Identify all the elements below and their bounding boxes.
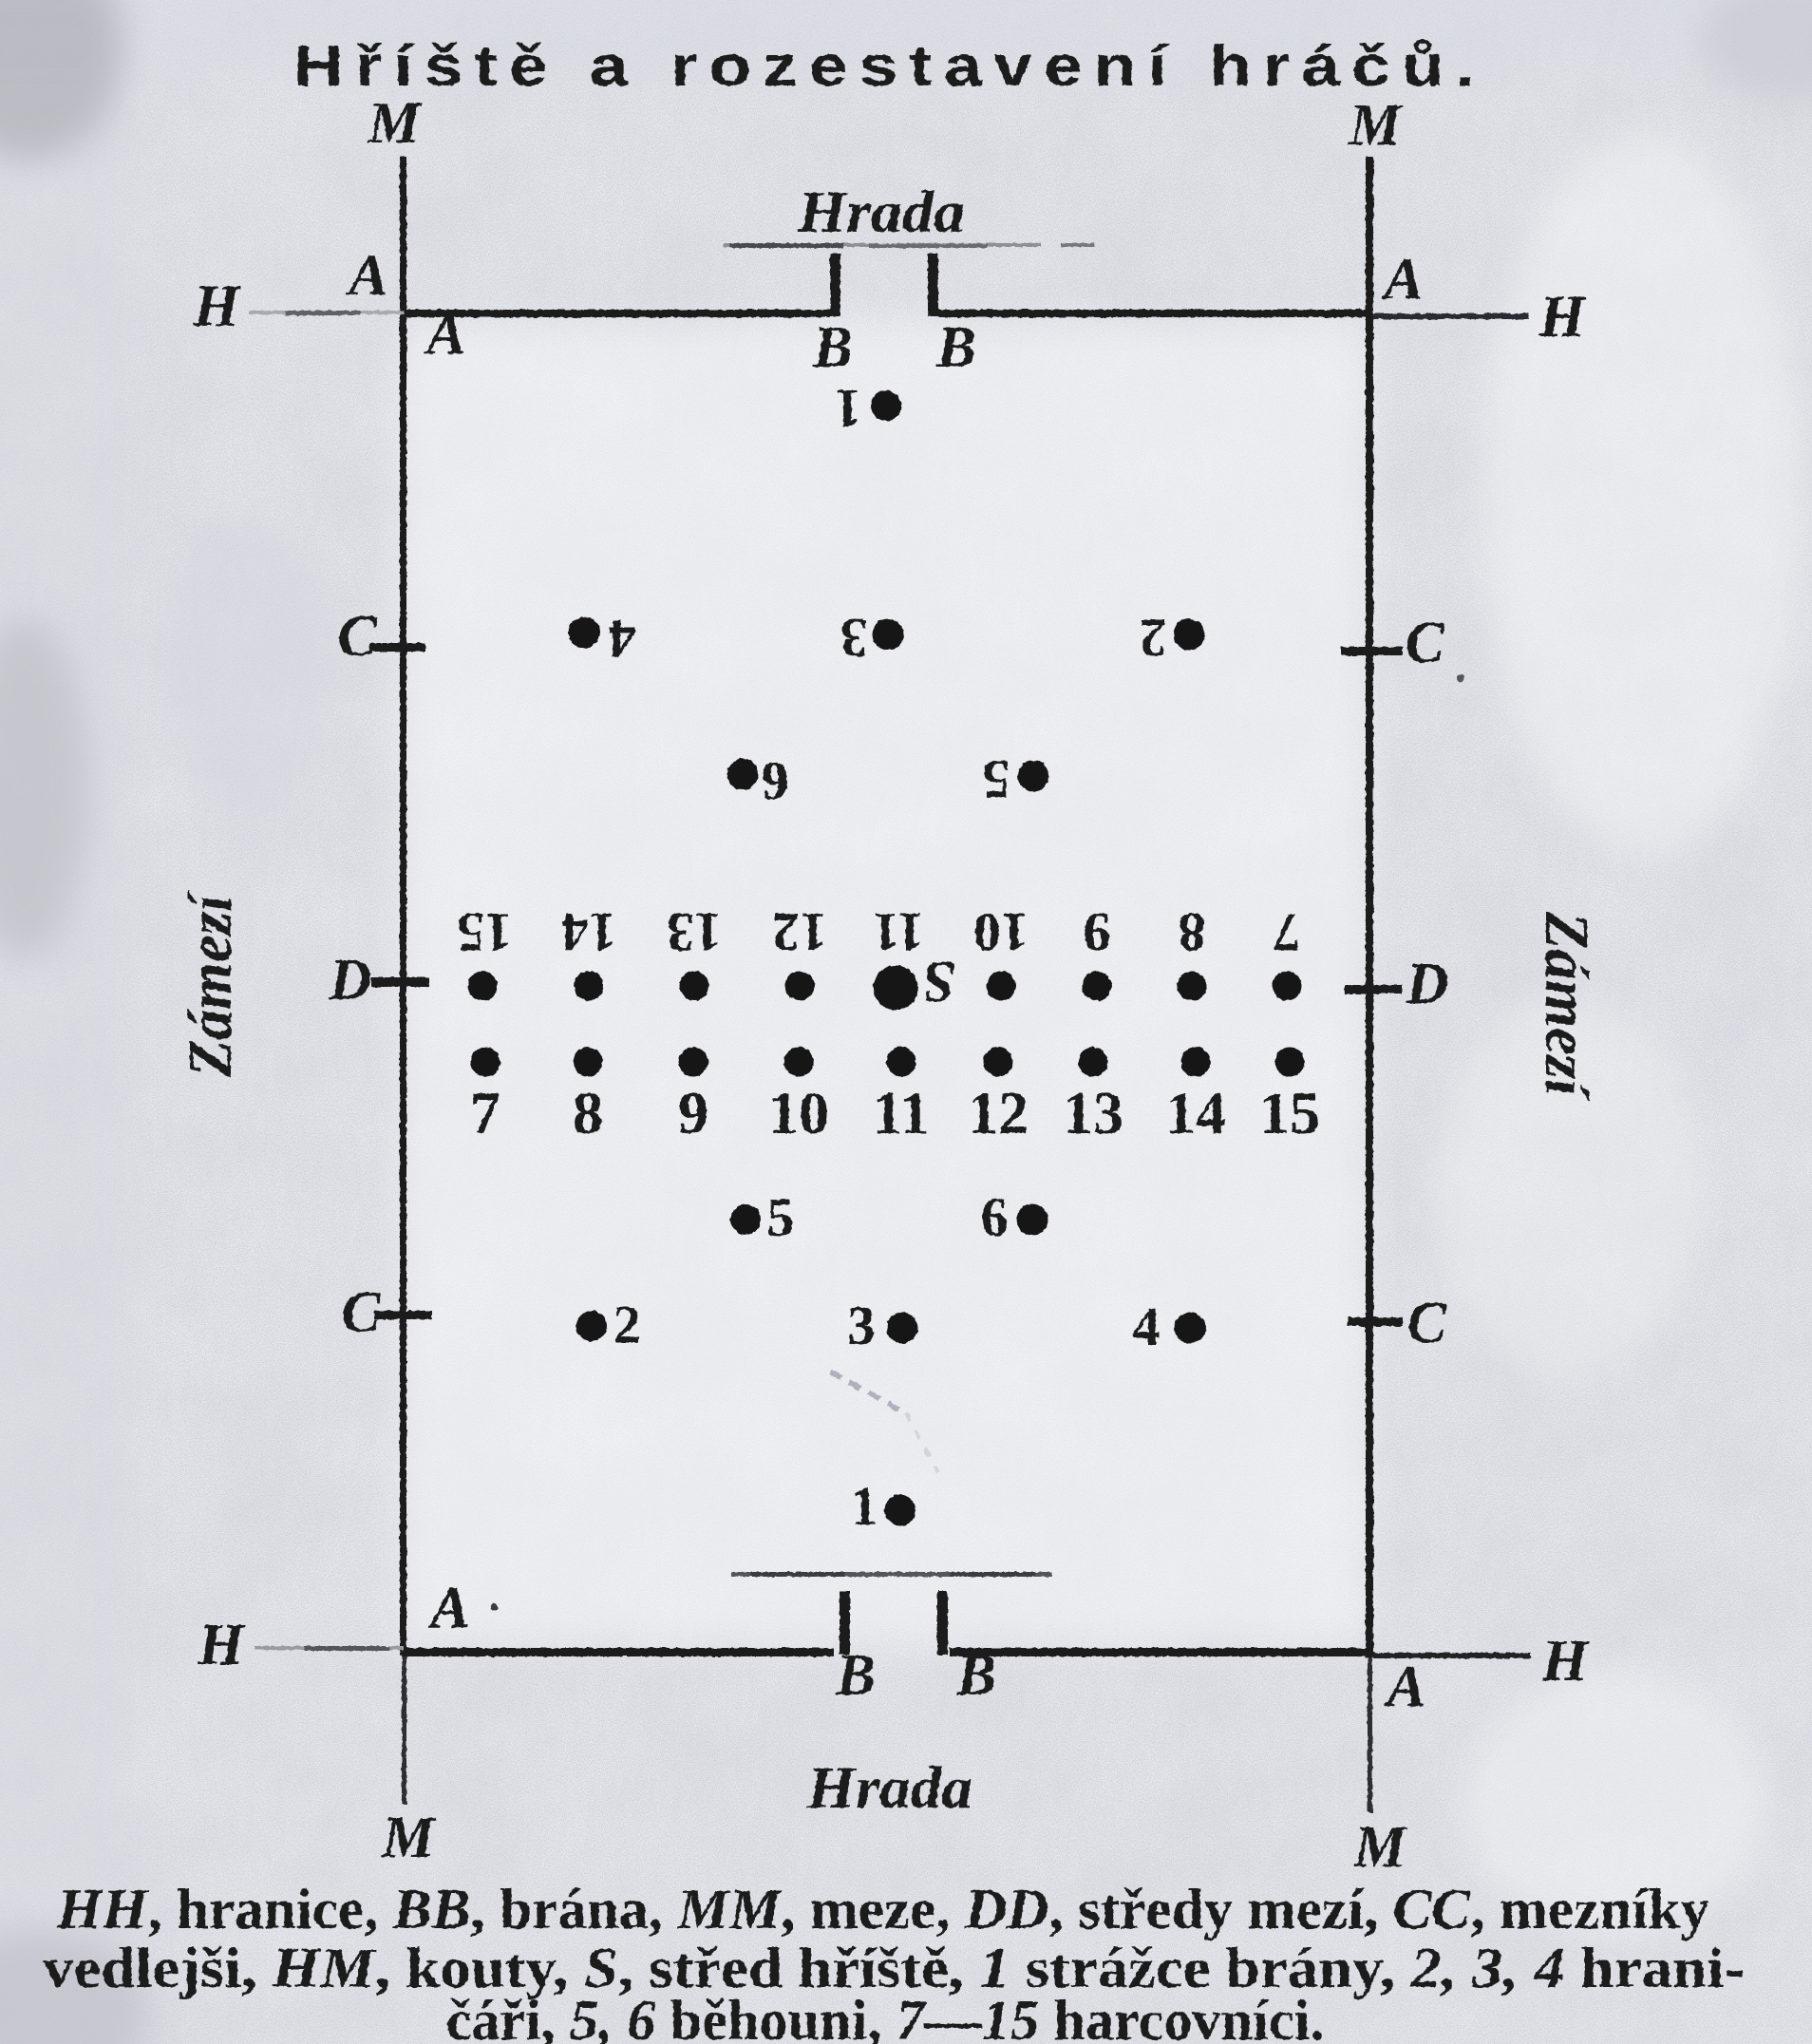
svg-text:13: 13 (667, 901, 722, 963)
svg-text:D: D (1406, 952, 1449, 1016)
svg-text:8: 8 (573, 1079, 603, 1146)
svg-text:2: 2 (613, 1294, 641, 1355)
svg-text:6: 6 (981, 1186, 1009, 1248)
svg-text:HH, hranice, BB, brána, MM, me: HH, hranice, BB, brána, MM, meze, DD, st… (56, 1878, 1709, 1940)
svg-text:C: C (337, 604, 377, 669)
svg-text:C: C (341, 1280, 381, 1345)
svg-text:B: B (935, 315, 975, 380)
svg-text:4: 4 (609, 608, 636, 670)
svg-text:B: B (955, 1643, 995, 1708)
svg-text:B: B (835, 1643, 875, 1708)
svg-text:4: 4 (1133, 1296, 1161, 1357)
svg-text:12: 12 (772, 901, 827, 963)
svg-text:D: D (329, 948, 372, 1013)
svg-text:Zámezí: Zámezí (1532, 911, 1601, 1101)
svg-text:C: C (1405, 611, 1444, 675)
svg-text:14: 14 (1165, 1079, 1226, 1146)
svg-text:A: A (345, 243, 387, 308)
svg-text:1: 1 (851, 1475, 878, 1537)
svg-text:A: A (1380, 247, 1423, 312)
svg-text:Hrada: Hrada (806, 1756, 972, 1821)
svg-text:H: H (1538, 285, 1587, 350)
svg-text:3: 3 (848, 1295, 876, 1356)
svg-text:čáři, 5, 6 běhouni, 7—15 harco: čáři, 5, 6 běhouni, 7—15 harcovníci. (446, 1989, 1325, 2044)
svg-text:H: H (193, 274, 241, 339)
svg-text:Hříště a rozestavení hráčů.: Hříště a rozestavení hráčů. (293, 34, 1486, 98)
svg-text:1: 1 (835, 378, 862, 440)
svg-text:Zámezí: Zámezí (176, 890, 245, 1077)
svg-text:Hrada: Hrada (797, 180, 965, 245)
svg-text:5: 5 (983, 748, 1010, 810)
svg-text:11: 11 (873, 901, 925, 963)
svg-text:11: 11 (873, 1079, 930, 1146)
svg-text:10: 10 (768, 1079, 829, 1146)
svg-text:15: 15 (457, 901, 512, 963)
svg-text:A: A (1383, 1655, 1425, 1719)
svg-text:S: S (923, 949, 955, 1013)
svg-text:M: M (1352, 1815, 1407, 1880)
svg-text:8: 8 (1179, 901, 1206, 963)
svg-text:5: 5 (767, 1186, 795, 1248)
svg-text:12: 12 (968, 1079, 1029, 1146)
svg-text:A: A (423, 302, 465, 367)
svg-text:2: 2 (1140, 607, 1167, 669)
svg-text:10: 10 (973, 901, 1029, 963)
svg-text:H: H (198, 1613, 246, 1677)
svg-text:14: 14 (561, 901, 616, 963)
svg-text:6: 6 (762, 750, 789, 812)
svg-text:H: H (1541, 1629, 1590, 1694)
svg-text:9: 9 (1084, 901, 1111, 963)
svg-text:9: 9 (678, 1079, 708, 1146)
svg-text:15: 15 (1259, 1079, 1320, 1146)
svg-text:3: 3 (840, 607, 868, 669)
svg-text:7: 7 (1274, 901, 1301, 963)
svg-text:7: 7 (470, 1079, 500, 1146)
svg-text:M: M (1348, 93, 1403, 158)
svg-text:C: C (1406, 1291, 1446, 1355)
svg-text:13: 13 (1063, 1079, 1123, 1146)
svg-text:M: M (381, 1806, 436, 1870)
svg-text:A: A (426, 1576, 469, 1640)
svg-text:M: M (367, 91, 422, 156)
svg-text:B: B (812, 315, 852, 380)
